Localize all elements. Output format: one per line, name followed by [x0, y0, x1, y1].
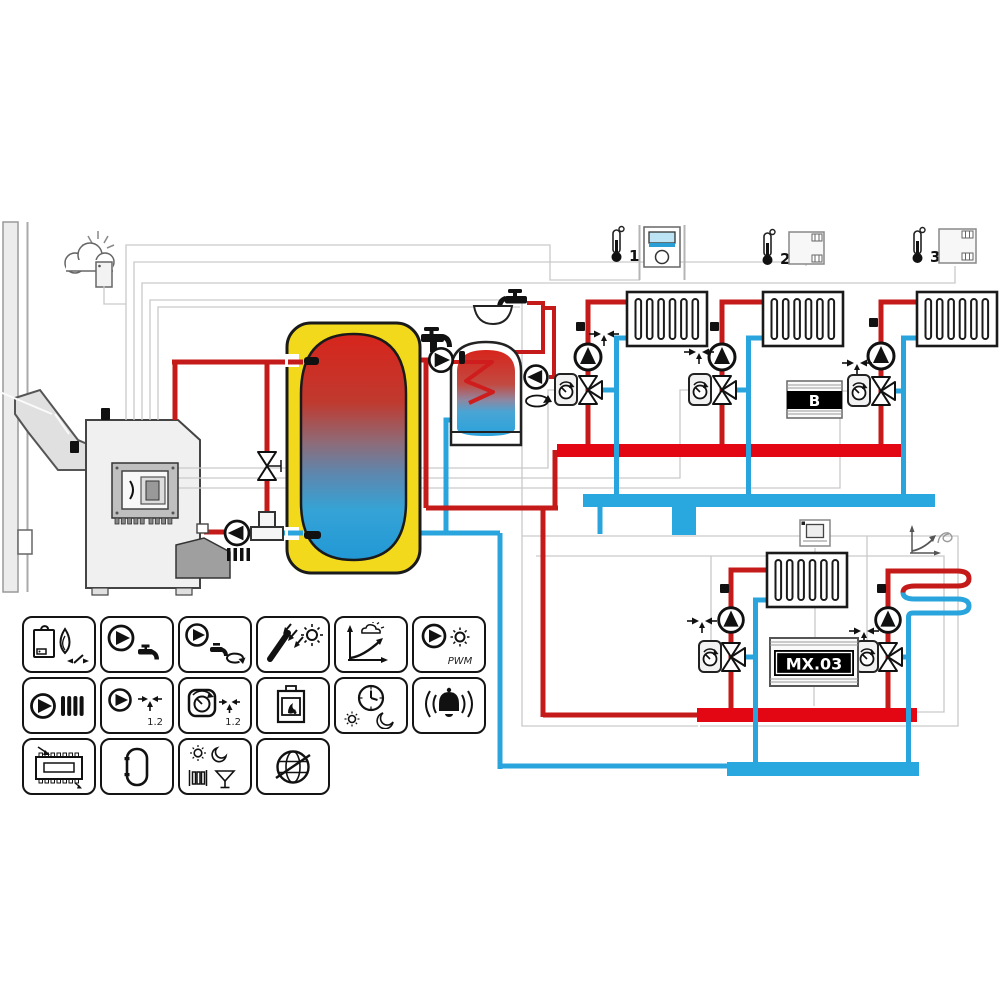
room-unit-display [649, 232, 675, 243]
legend-row-3 [22, 738, 330, 795]
icon-button-party-holiday-mode[interactable] [178, 738, 252, 795]
mixer-pump-label: 1.2 [147, 717, 163, 728]
mixer-valve-icon: 1.2 [183, 683, 247, 729]
buffer-tank [285, 323, 420, 573]
buffer-sensor-top [304, 357, 319, 365]
radiator-4 [767, 553, 847, 607]
icon-button-boiler-burner[interactable] [22, 616, 96, 673]
circuit5-actuator [856, 641, 878, 672]
circuit3-mixing-valve [872, 377, 895, 405]
radiator-1 [627, 292, 707, 346]
controller-mx: MX.03 [770, 638, 858, 686]
chimney-cleanout [18, 530, 32, 554]
room-module-3 [939, 229, 976, 263]
upper-return-manifold [583, 494, 935, 507]
heating-curve-icon [910, 525, 952, 556]
controller-mx-label: MX.03 [786, 655, 843, 674]
circuit4-vent-icon [687, 618, 717, 634]
fireplace-icon [261, 683, 325, 729]
solar-collector-icon [261, 622, 325, 668]
circuit4-mixing-valve [722, 643, 745, 671]
controller-module-icon [27, 744, 91, 790]
dhw-charge-pump [429, 348, 452, 371]
icon-button-alarm[interactable] [412, 677, 486, 734]
controller-b-label: B [809, 392, 820, 410]
icon-button-dhw-pump[interactable] [100, 616, 174, 673]
room-module-2 [789, 232, 824, 264]
dhw-circulation-pump [525, 366, 548, 389]
icon-button-heating-pump[interactable] [22, 677, 96, 734]
alarm-bell-icon [417, 683, 481, 729]
icon-button-mixer-valve-1-2[interactable]: 1.2 [178, 677, 252, 734]
legend-row-2: 1.2 1.2 [22, 677, 486, 734]
circuit2-actuator [689, 374, 711, 405]
outdoor-sensor [65, 231, 114, 287]
icon-button-mixer-pump-1-2[interactable]: 1.2 [100, 677, 174, 734]
heating-curve-icon [339, 622, 403, 668]
dhw-tank [451, 342, 521, 445]
room-unit-knob [656, 251, 669, 264]
icon-button-heating-curve[interactable] [334, 616, 408, 673]
room-thermometer-3 [913, 228, 926, 264]
upper-supply-manifold [557, 444, 903, 457]
party-holiday-mode-icon [183, 744, 247, 790]
flue-sensor [70, 441, 79, 453]
lower-supply-manifold [697, 708, 917, 722]
circuit1-mixing-valve [579, 376, 602, 404]
boiler-sensor [101, 408, 110, 420]
room-sensor-1-label: 1 [629, 247, 639, 265]
boiler-pump [225, 521, 249, 545]
boiler-control-panel [112, 463, 178, 524]
icon-button-fireplace[interactable] [256, 677, 330, 734]
pwm-label: PWM [448, 656, 473, 667]
circuit1-pump [575, 344, 601, 370]
circuit3-pump [868, 343, 894, 369]
floor-coil-return [903, 593, 969, 764]
buffer-tank-icon [105, 744, 169, 790]
icon-button-timer-day-night[interactable] [334, 677, 408, 734]
lower-return-manifold [727, 762, 919, 776]
circuit3-vent-icon [842, 360, 872, 376]
controller-b: B [787, 381, 842, 418]
radiator-2 [763, 292, 843, 346]
dhw-circulation-pump-icon [183, 622, 247, 668]
circuit4-actuator [699, 641, 721, 672]
circuit2-pump [709, 344, 735, 370]
dhw-pump-icon [105, 622, 169, 668]
zone-display-module [800, 520, 830, 546]
circuit5-pump [876, 608, 901, 633]
internet-globe-icon [261, 744, 325, 790]
schematic-canvas: B MX.03 1 2 [0, 0, 1000, 1000]
room-thermometer-1 [612, 227, 625, 263]
solar-pump-pwm-icon: PWM [417, 622, 481, 668]
boiler-pump-fins [227, 548, 250, 561]
heating-pump-icon [27, 683, 91, 729]
buffer-sensor-bottom [304, 531, 321, 539]
icon-button-controller-module[interactable] [22, 738, 96, 795]
room-thermometer-2 [763, 230, 776, 266]
boiler-loop-valve [258, 452, 281, 480]
circuit2-mixing-valve [713, 376, 736, 404]
circuit3-actuator [848, 375, 870, 406]
heating-schematic: B MX.03 1 2 [0, 0, 1000, 1000]
timer-day-night-icon [339, 683, 403, 729]
radiator-3 [917, 292, 997, 346]
sink-basin [474, 306, 512, 324]
icon-button-dhw-circulation-pump[interactable] [178, 616, 252, 673]
circuit1-actuator [555, 374, 577, 405]
icon-button-solar-pump-pwm[interactable]: PWM [412, 616, 486, 673]
room-unit-1 [644, 227, 680, 267]
icon-button-buffer-tank[interactable] [100, 738, 174, 795]
circuit5-mixing-valve [879, 643, 902, 671]
burner [176, 538, 230, 578]
upper-return-manifold-stub [672, 505, 696, 535]
mixer-pump-icon: 1.2 [105, 683, 169, 729]
icon-button-solar-collector[interactable] [256, 616, 330, 673]
legend-row-1: PWM [22, 616, 486, 673]
dhw-sensor [459, 351, 465, 364]
mixer-valve-label: 1.2 [225, 717, 241, 728]
chimney [0, 222, 92, 592]
circuit4-pump [719, 608, 744, 633]
icon-button-internet-globe[interactable] [256, 738, 330, 795]
boiler-burner-icon [27, 622, 91, 668]
